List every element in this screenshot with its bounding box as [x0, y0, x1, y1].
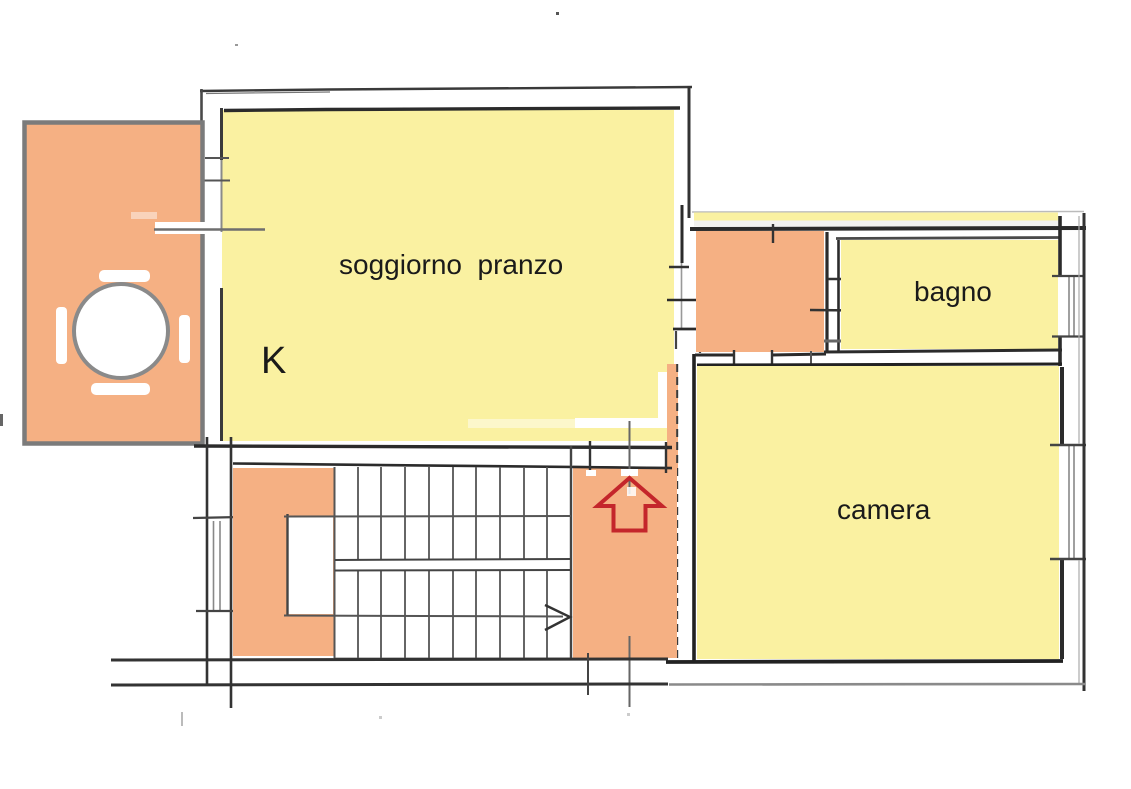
- svg-text:camera: camera: [837, 494, 931, 525]
- svg-text:K: K: [261, 340, 286, 382]
- svg-text:bagno: bagno: [914, 276, 992, 307]
- svg-text:soggiorno pranzo: soggiorno pranzo: [339, 249, 563, 280]
